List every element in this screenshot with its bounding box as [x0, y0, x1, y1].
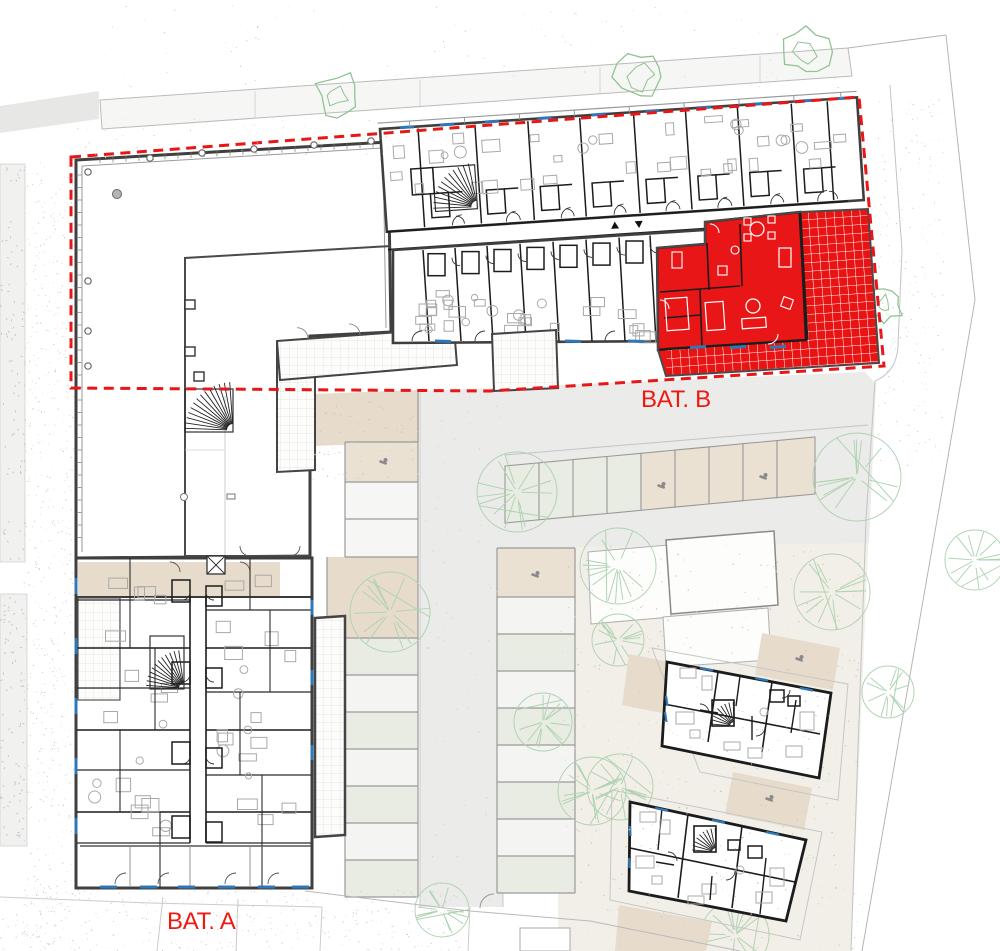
svg-text:BAT. A: BAT. A [167, 908, 236, 935]
svg-text:BAT. B: BAT. B [641, 386, 711, 413]
